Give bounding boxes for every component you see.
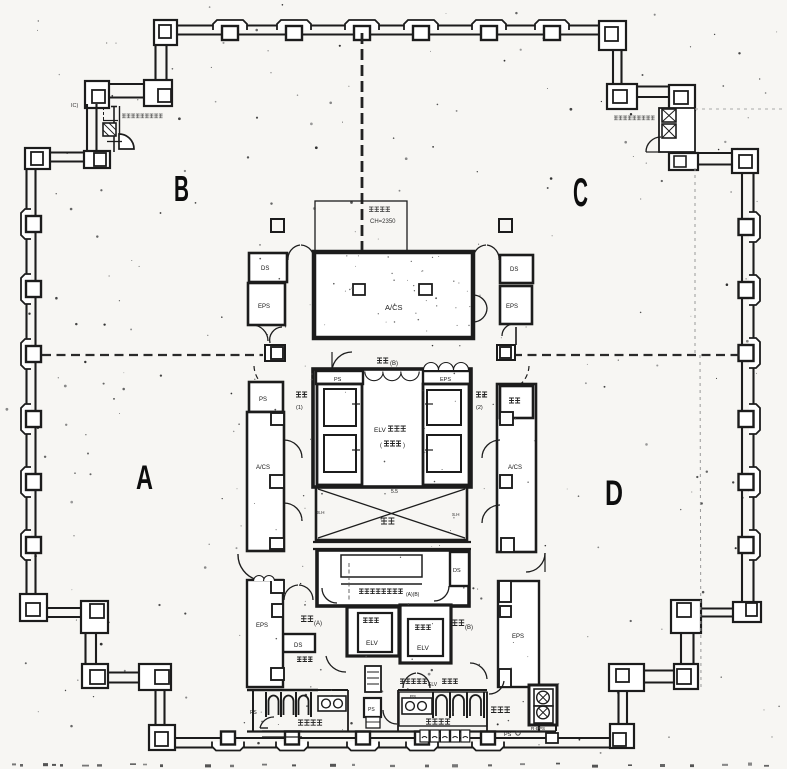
svg-text:DS: DS	[294, 643, 302, 649]
svg-text:R·EPS: R·EPS	[531, 726, 545, 731]
svg-text:PS: PS	[259, 397, 267, 403]
svg-text:C: C	[573, 171, 588, 215]
svg-text:(B): (B)	[390, 361, 398, 367]
svg-text:DS: DS	[510, 267, 518, 273]
svg-text:B: B	[174, 168, 189, 209]
svg-text:A/CS: A/CS	[256, 465, 270, 471]
svg-text:(2): (2)	[476, 405, 483, 411]
svg-text:ELV: ELV	[374, 427, 386, 434]
svg-text:EPS: EPS	[506, 304, 518, 310]
svg-text:(B): (B)	[465, 625, 473, 631]
svg-text:S.H: S.H	[317, 510, 325, 515]
svg-text:(A)(B): (A)(B)	[406, 592, 420, 598]
svg-text:A: A	[136, 459, 153, 497]
svg-text:ELV: ELV	[417, 645, 429, 652]
svg-text:PS: PS	[368, 707, 375, 713]
svg-text:A/CS: A/CS	[385, 303, 403, 312]
svg-text:(: (	[380, 443, 382, 449]
svg-text:PS: PS	[250, 710, 257, 716]
svg-text:DS: DS	[453, 568, 461, 574]
svg-text:PS: PS	[504, 732, 512, 738]
svg-text:(1): (1)	[296, 405, 303, 411]
svg-text:IC): IC)	[71, 103, 79, 109]
svg-text:S.H: S.H	[452, 512, 460, 517]
svg-text:PS: PS	[334, 377, 342, 383]
svg-text:ELV: ELV	[428, 682, 438, 688]
svg-text:D: D	[605, 474, 623, 513]
svg-text:): )	[403, 443, 405, 449]
svg-text:(A): (A)	[314, 621, 322, 627]
svg-text:CH=2350: CH=2350	[370, 219, 396, 225]
svg-text:A/CS: A/CS	[508, 465, 522, 471]
svg-text:ELV: ELV	[366, 640, 378, 647]
svg-text:EPS: EPS	[440, 377, 451, 383]
svg-text:5.5: 5.5	[391, 489, 398, 495]
svg-text:EPS: EPS	[256, 623, 268, 629]
svg-text:DS: DS	[261, 266, 269, 272]
svg-text:EPS: EPS	[258, 304, 270, 310]
svg-text:EPS: EPS	[512, 634, 524, 640]
